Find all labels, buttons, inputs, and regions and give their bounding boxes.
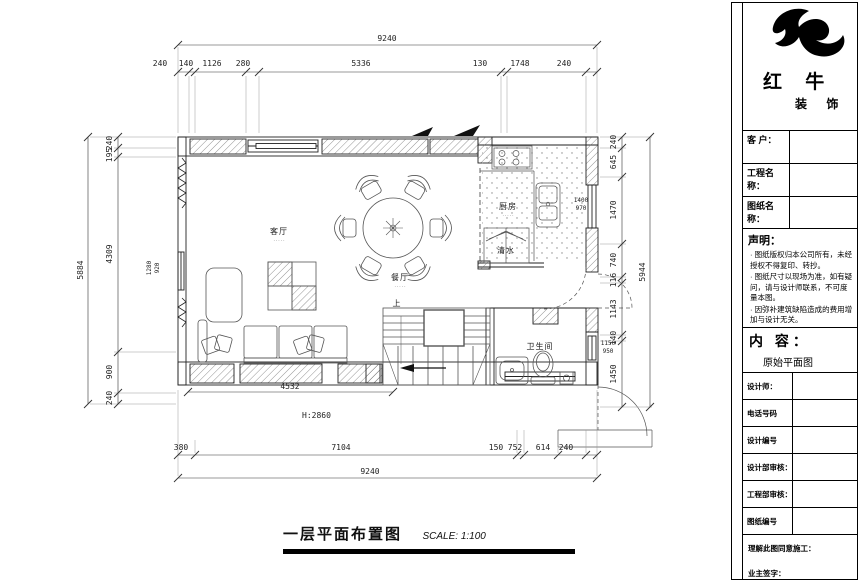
construction-consent-note: 理解此图同意施工： — [748, 543, 854, 554]
client-row: 客 户： — [743, 131, 857, 163]
sheet-no-label: 图纸编号 — [743, 508, 793, 534]
project-row: 工程名称： — [743, 164, 857, 197]
eng-review-value — [793, 481, 857, 507]
porch-door-arc — [598, 387, 647, 436]
statement-item: 图纸尺寸以现场为准，如有疑问，请与设计师联系，不可度量本图。 — [750, 272, 854, 304]
info-section: 设计师： 电话号码 设计编号 设计部审核： 工程部审核： 图纸编号 — [743, 373, 857, 535]
company-logo: 红 牛 装 饰 — [743, 3, 857, 131]
dim-left-seg: 4309 — [105, 244, 114, 263]
dim-right-seg: 1450 — [609, 364, 618, 383]
dining-table — [363, 198, 423, 258]
dim-left-overall: 5884 — [76, 260, 85, 279]
dim-sofa-width: 4532 — [280, 382, 299, 391]
room-note: ····· — [394, 284, 406, 289]
eng-review-label: 工程部审核： — [743, 481, 793, 507]
dim-top-seg: 240 — [153, 59, 168, 68]
floor-plan-drawing: 9240 240 140 1126 280 5336 130 1748 240 … — [0, 0, 732, 580]
dim-kitchen-window: 970 — [576, 205, 587, 212]
dim-top-overall: 9240 — [377, 34, 396, 43]
sheet-no-row: 图纸编号 — [743, 508, 857, 535]
project-label: 工程名称： — [743, 164, 790, 196]
sofa-pillows — [201, 334, 325, 354]
room-label-bath: 卫生间 — [527, 341, 554, 351]
dim-right-seg: 240 — [609, 135, 618, 150]
title-block-inner: 红 牛 装 饰 客 户： 工程名称： 图纸名称： 声明： 图纸版权归本公司所有，… — [742, 3, 857, 579]
dim-right-overall: 5944 — [638, 262, 647, 281]
dim-right-seg: 116 — [609, 273, 618, 288]
title-block: 红 牛 装 饰 客 户： 工程名称： 图纸名称： 声明： 图纸版权归本公司所有，… — [731, 2, 858, 580]
dim-bottom-seg: 240 — [559, 443, 574, 452]
designer-row: 设计师： — [743, 373, 857, 400]
signature-section: 理解此图同意施工： 业主签字： — [743, 535, 857, 579]
kitchen-door-arc — [544, 267, 586, 309]
room-note: ····· — [273, 238, 285, 243]
phone-row: 电话号码 — [743, 400, 857, 427]
sheet-no-value — [793, 508, 857, 534]
kitchen — [480, 146, 584, 263]
title-underline-bar — [283, 549, 575, 554]
content-value: 原始平面图 — [763, 354, 857, 369]
dim-top-seg: 5336 — [351, 59, 370, 68]
owner-signature-label: 业主签字： — [748, 568, 854, 579]
drawing-title-text: 一层平面布置图 — [283, 526, 402, 543]
brand-name: 红 牛 — [763, 67, 833, 94]
phone-label: 电话号码 — [743, 400, 793, 426]
dim-left-window: 1280 — [146, 260, 153, 275]
content-section: 内 容： 原始平面图 — [743, 328, 857, 373]
rug — [268, 262, 316, 310]
dim-bottom-seg: 150 — [489, 443, 504, 452]
dim-bottom-overall: 9240 — [360, 467, 379, 476]
designer-value — [793, 373, 857, 399]
dimension-lines — [88, 45, 650, 478]
drawing-name-label: 图纸名称： — [743, 197, 790, 228]
phone-value — [793, 400, 857, 426]
dim-left-seg: 240 — [105, 391, 114, 406]
stairs-arrow — [400, 364, 446, 372]
statement-list: 图纸版权归本公司所有，未经授权不得复印、转抄。 图纸尺寸以现场为准，如有疑问，请… — [748, 250, 854, 326]
room-label-living: 客厅 — [270, 226, 288, 236]
designer-label: 设计师： — [743, 373, 793, 399]
dim-bottom-seg: 752 — [508, 443, 523, 452]
eng-review-row: 工程部审核： — [743, 481, 857, 508]
bull-swoosh-icon — [743, 3, 857, 65]
design-no-row: 设计编号 — [743, 427, 857, 454]
drawing-name-row: 图纸名称： — [743, 197, 857, 229]
bath-right-window — [588, 336, 596, 360]
design-review-value — [793, 454, 857, 480]
client-label: 客 户： — [743, 131, 790, 162]
design-review-label: 设计部审核： — [743, 454, 793, 480]
statement-item: 图纸版权归本公司所有，未经授权不得复印、转抄。 — [750, 250, 854, 271]
stairs-up-label: 上 — [393, 299, 402, 308]
dimension-ticks — [84, 41, 654, 482]
room-label-cabinet: 清水 — [497, 245, 515, 255]
extension-lines — [90, 47, 652, 476]
dim-height-note: H:2860 — [302, 411, 331, 420]
design-no-value — [793, 427, 857, 453]
dim-left-seg: 195 — [105, 148, 114, 163]
left-window — [178, 252, 184, 290]
dim-top-seg: 1126 — [202, 59, 221, 68]
blueprint-page: 9240 240 140 1126 280 5336 130 1748 240 … — [0, 0, 860, 580]
kitchen-right-window — [588, 185, 596, 228]
dim-right-seg: 740 — [609, 253, 618, 268]
dim-right-seg: 645 — [609, 155, 618, 170]
drawing-footer: 一层平面布置图 SCALE: 1:100 — [283, 523, 486, 544]
drawing-name-value — [790, 197, 857, 228]
dim-right-seg: 1143 — [609, 299, 618, 318]
room-label-dining: 餐厅 — [391, 273, 409, 282]
dim-bottom-seg: 7104 — [331, 443, 350, 452]
dim-top-seg: 130 — [473, 59, 488, 68]
dim-bath-window: 1150 — [601, 340, 616, 347]
stairs — [383, 308, 490, 385]
dim-kitchen-window: 1400 — [574, 197, 589, 204]
dim-left-window: 920 — [154, 262, 161, 273]
statement-heading: 声明： — [748, 232, 854, 248]
top-window — [248, 140, 318, 152]
dim-top-seg: 1748 — [510, 59, 529, 68]
dim-bath-window: 950 — [603, 348, 614, 355]
break-symbol-2 — [178, 298, 186, 327]
break-symbol — [178, 158, 186, 208]
drawing-scale-text: SCALE: 1:100 — [422, 531, 485, 542]
room-label-kitchen: 厨房 — [499, 201, 517, 211]
pennant-markers — [412, 125, 480, 136]
room-note: ····· — [502, 213, 514, 218]
dim-bottom-seg: 614 — [536, 443, 551, 452]
dim-top-seg: 240 — [557, 59, 572, 68]
dim-bottom-seg: 380 — [174, 443, 189, 452]
design-review-row: 设计部审核： — [743, 454, 857, 481]
project-value — [790, 164, 857, 196]
table-centerpiece — [383, 218, 403, 238]
dim-top-seg: 140 — [179, 59, 194, 68]
design-no-label: 设计编号 — [743, 427, 793, 453]
statement-item: 因弥补建筑缺陷造成的费用增加与设计无关。 — [750, 305, 854, 326]
dim-left-seg: 900 — [105, 365, 114, 380]
dim-top-seg: 280 — [236, 59, 251, 68]
content-heading: 内 容： — [749, 331, 857, 351]
client-value — [790, 131, 857, 162]
dim-right-seg: 1470 — [609, 200, 618, 219]
brand-suffix: 装 饰 — [795, 95, 846, 112]
statement-section: 声明： 图纸版权归本公司所有，未经授权不得复印、转抄。 图纸尺寸以现场为准，如有… — [743, 229, 857, 328]
